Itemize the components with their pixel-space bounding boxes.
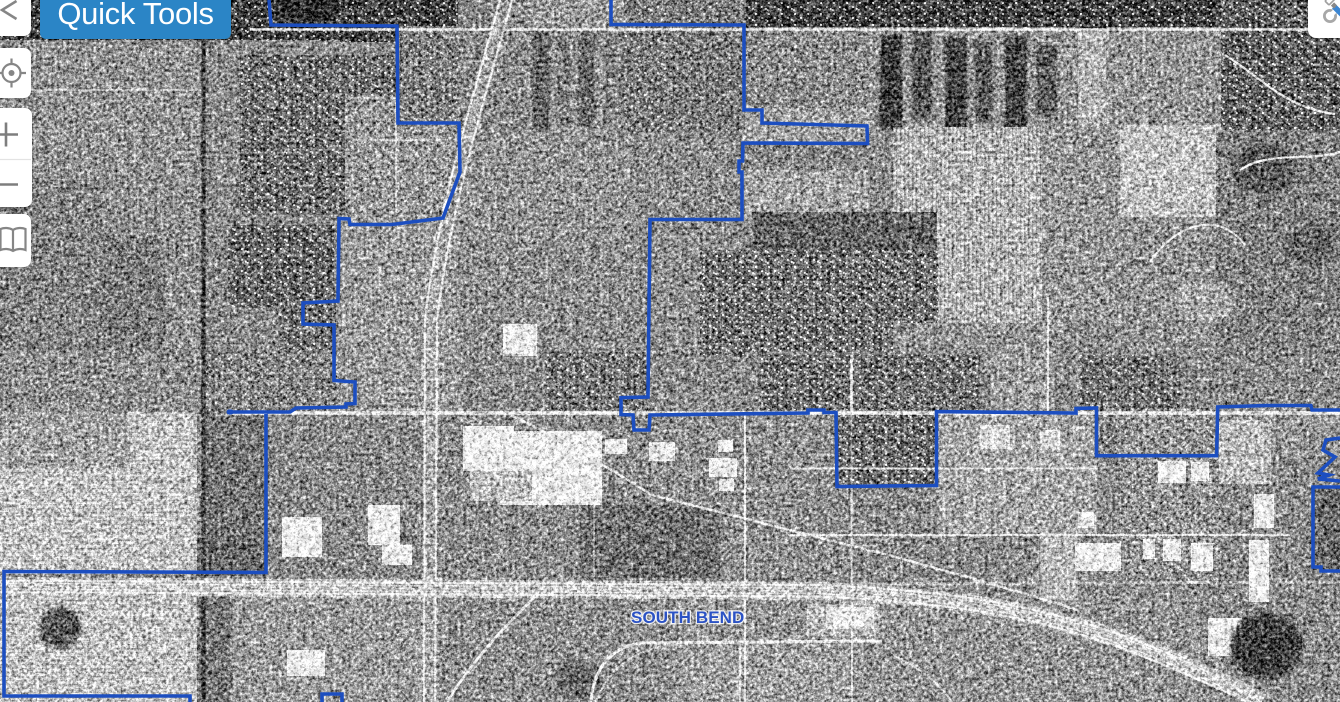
svg-text:SOUTH BEND: SOUTH BEND <box>631 608 744 627</box>
